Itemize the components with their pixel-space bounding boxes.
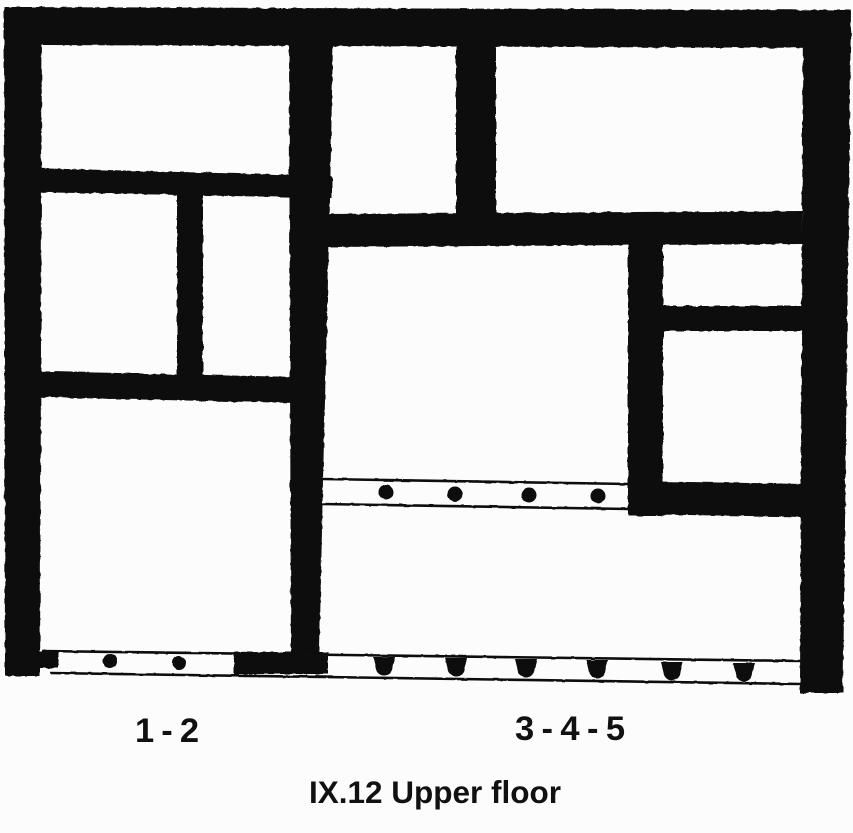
svg-text:IX.12 Upper floor: IX.12 Upper floor — [309, 774, 561, 810]
svg-text:1 - 2: 1 - 2 — [135, 712, 199, 750]
svg-text:3 - 4 - 5: 3 - 4 - 5 — [515, 710, 625, 748]
